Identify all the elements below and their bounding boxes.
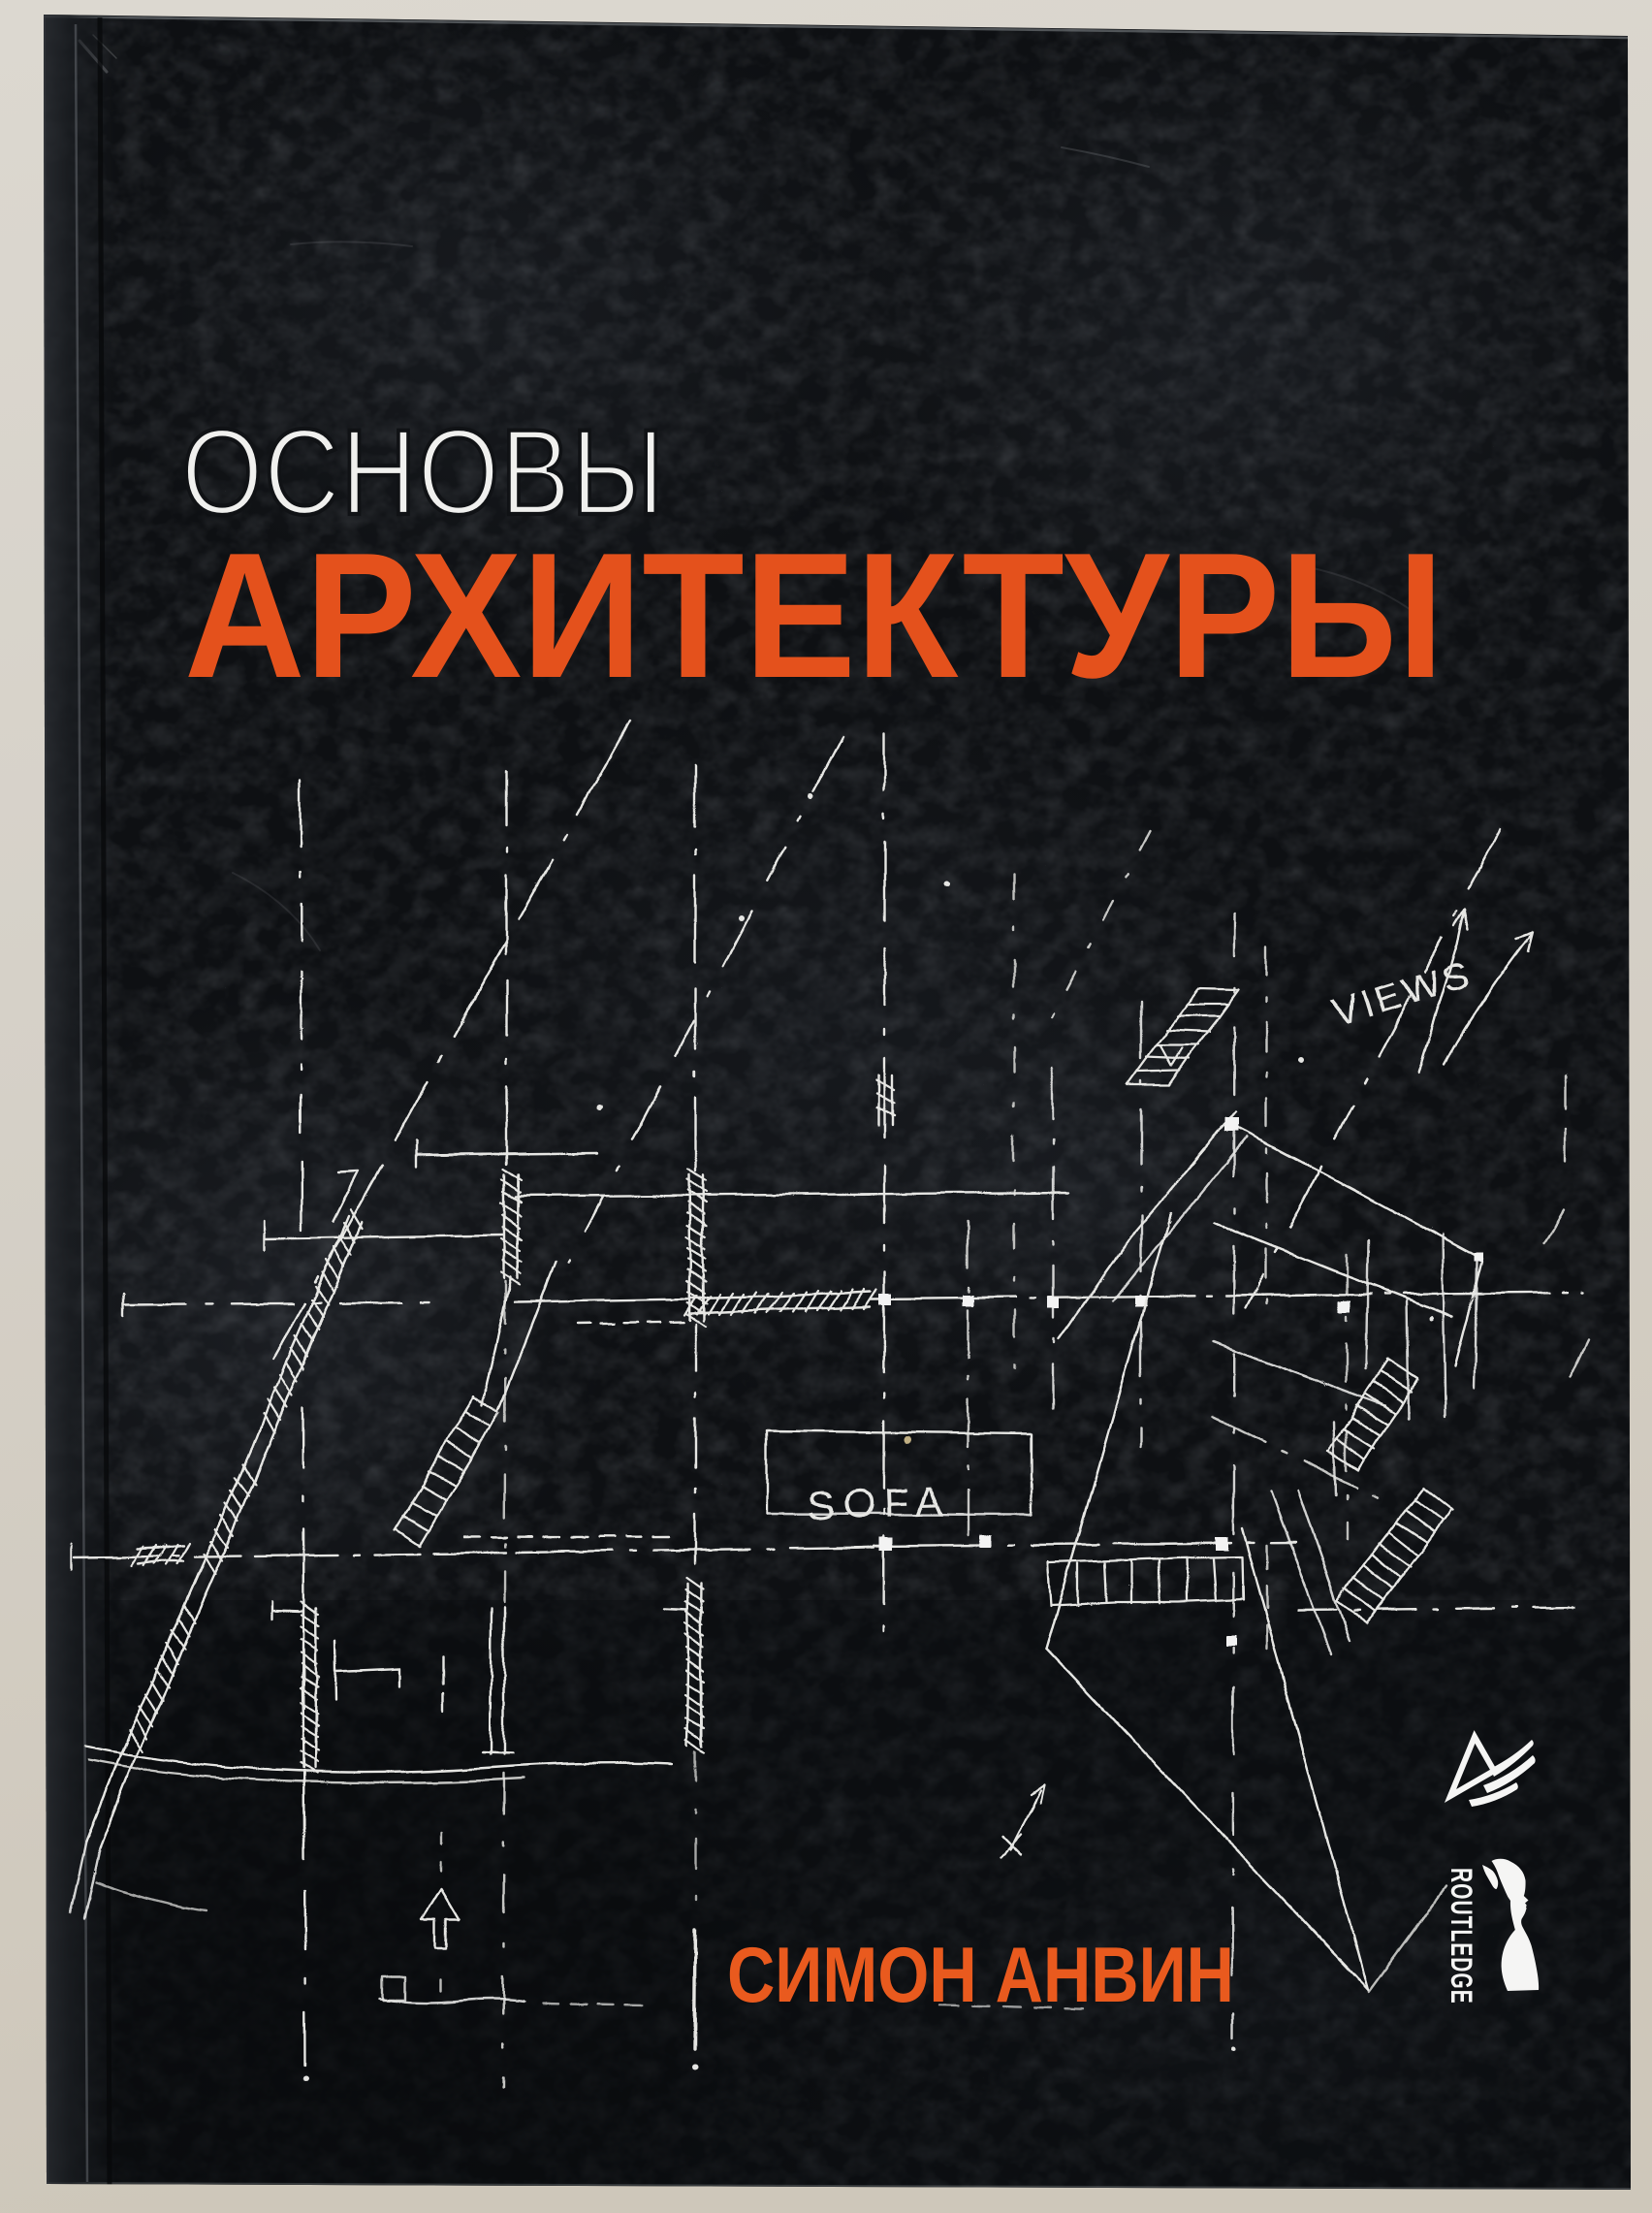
svg-text:АРХИТЕКТУРЫ: АРХИТЕКТУРЫ [184, 516, 1444, 715]
svg-text:ROUTLEDGE: ROUTLEDGE [1445, 1868, 1478, 2005]
svg-text:SOFA: SOFA [806, 1477, 951, 1527]
